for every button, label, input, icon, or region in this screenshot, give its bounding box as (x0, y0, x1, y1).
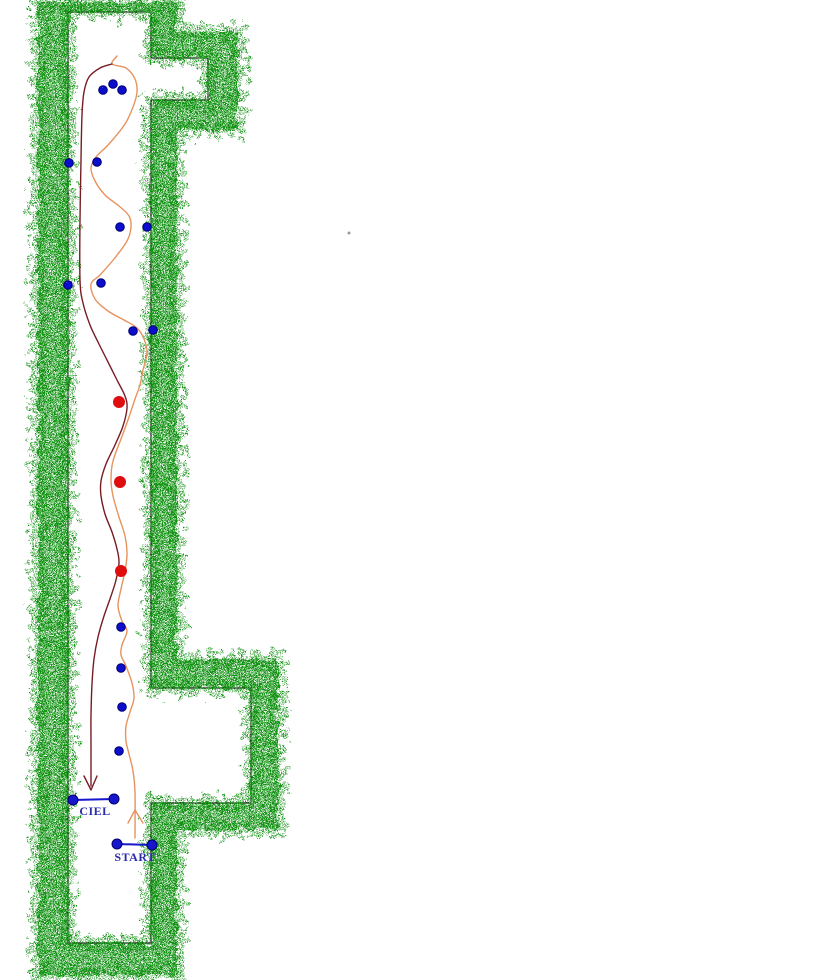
blue-obstacle-dot (129, 327, 138, 336)
gate-endpoint-dot (109, 794, 119, 804)
gate-label-ciel: CIEL (79, 804, 110, 818)
blue-obstacle-dot (118, 703, 127, 712)
blue-obstacle-dot (149, 326, 158, 335)
blue-obstacle-dot (117, 664, 126, 673)
blue-obstacle-dot (117, 623, 126, 632)
obstacle-dots (64, 80, 158, 756)
gate-endpoint-dot (147, 840, 157, 850)
gate-endpoint-dot (68, 795, 78, 805)
gate-endpoint-dot (112, 839, 122, 849)
red-obstacle-dot (114, 476, 126, 488)
red-obstacle-dot (115, 565, 127, 577)
blue-obstacle-dot (99, 86, 108, 95)
red-obstacle-dot (113, 396, 125, 408)
blue-obstacle-dot (143, 223, 152, 232)
stray-speck (348, 232, 351, 235)
blue-obstacle-dot (64, 281, 73, 290)
gate-label-start: START (114, 850, 155, 864)
blue-obstacle-dot (109, 80, 118, 89)
speck-dot (348, 232, 351, 235)
course-map-canvas: CIEL START (0, 0, 819, 980)
trajectories (80, 56, 147, 838)
blue-obstacle-dot (115, 747, 124, 756)
course-map: CIEL START (0, 0, 819, 980)
blue-obstacle-dot (116, 223, 125, 232)
blue-obstacle-dot (118, 86, 127, 95)
outbound-trajectory (91, 56, 147, 838)
blue-obstacle-dot (97, 279, 106, 288)
blue-obstacle-dot (93, 158, 102, 167)
return-trajectory (80, 64, 127, 786)
gate-line-ciel (73, 799, 114, 800)
blue-obstacle-dot (65, 159, 74, 168)
